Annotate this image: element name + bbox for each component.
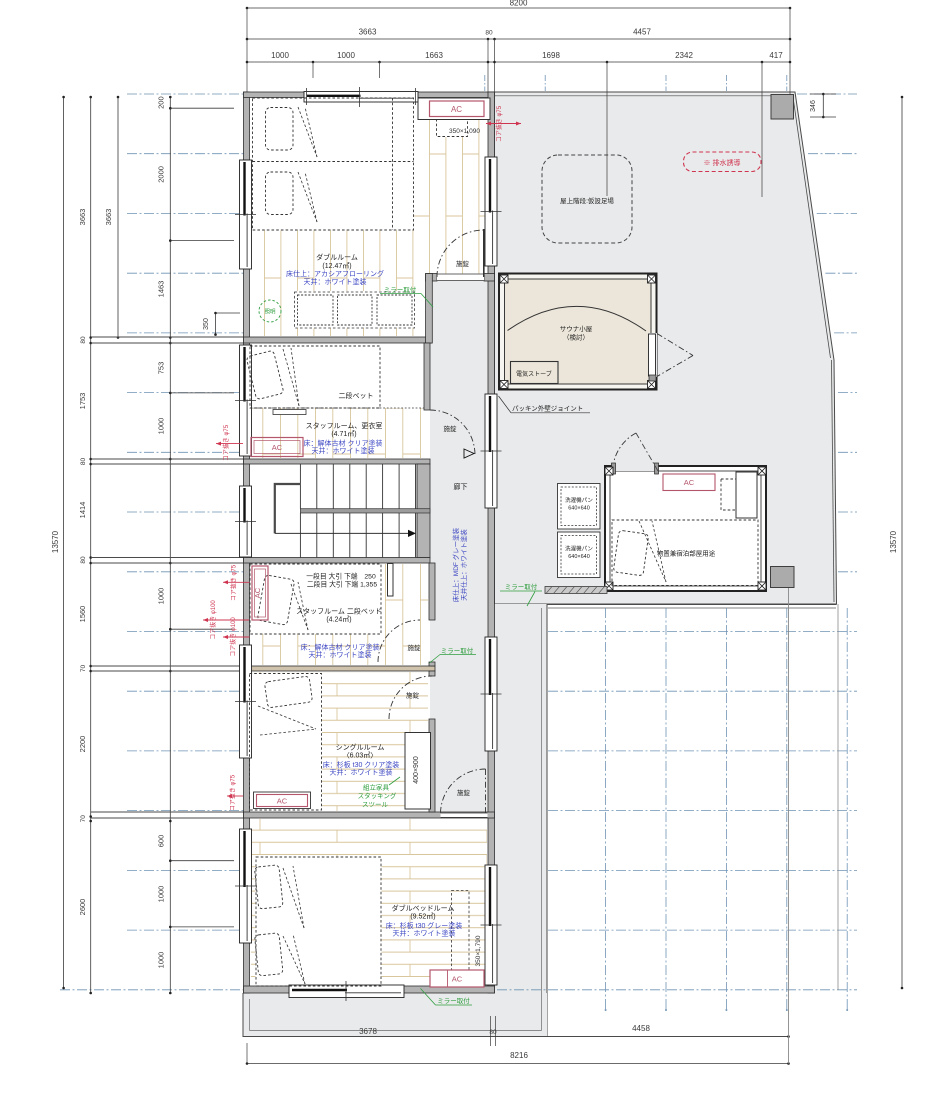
svg-text:洗濯機パン: 洗濯機パン <box>565 496 593 504</box>
svg-text:AC: AC <box>253 587 262 598</box>
svg-text:753: 753 <box>157 362 166 375</box>
svg-text:600: 600 <box>157 835 166 848</box>
svg-text:天井：ホワイト塗装: 天井：ホワイト塗装 <box>304 277 367 286</box>
svg-text:346: 346 <box>810 100 817 112</box>
svg-text:4457: 4457 <box>633 28 651 37</box>
svg-text:400×900: 400×900 <box>413 756 420 784</box>
svg-text:350×1,790: 350×1,790 <box>475 935 482 966</box>
svg-text:1698: 1698 <box>542 51 560 60</box>
svg-text:80: 80 <box>489 1029 497 1036</box>
svg-text:350×1,090: 350×1,090 <box>449 128 480 135</box>
svg-text:3678: 3678 <box>359 1027 377 1036</box>
svg-text:AC: AC <box>277 797 288 806</box>
svg-text:二段ベット: 二段ベット <box>339 391 374 400</box>
svg-text:一段目 大引 下端 250: 一段目 大引 下端 250 <box>306 572 376 581</box>
svg-text:417: 417 <box>769 51 783 60</box>
svg-text:床：杉板 t30 クリア塗装: 床：杉板 t30 クリア塗装 <box>323 760 400 769</box>
svg-text:80: 80 <box>80 556 87 564</box>
svg-text:コア抜き φ75: コア抜き φ75 <box>229 774 237 811</box>
svg-text:スタッキング: スタッキング <box>358 791 397 800</box>
svg-text:(12.47㎡): (12.47㎡) <box>322 262 351 270</box>
svg-text:床仕上：アカシアフローリング: 床仕上：アカシアフローリング <box>286 269 384 278</box>
svg-text:1000: 1000 <box>157 886 166 903</box>
svg-text:1663: 1663 <box>425 51 443 60</box>
svg-text:コア抜き φ75: コア抜き φ75 <box>222 424 230 461</box>
svg-text:天井：ホワイト塗装: 天井：ホワイト塗装 <box>393 929 456 938</box>
svg-text:1414: 1414 <box>78 502 87 519</box>
svg-text:床：杉板 t30 グレー塗装: 床：杉板 t30 グレー塗装 <box>386 921 463 930</box>
svg-text:70: 70 <box>80 665 87 673</box>
svg-text:二段目 大引 下端 1,355: 二段目 大引 下端 1,355 <box>307 580 377 589</box>
svg-text:640×640: 640×640 <box>568 506 590 512</box>
svg-text:2200: 2200 <box>78 736 87 753</box>
svg-text:床：解体古材 クリア塗装: 床：解体古材 クリア塗装 <box>301 643 380 652</box>
svg-text:ミラー取付: ミラー取付 <box>505 582 538 591</box>
svg-text:1000: 1000 <box>337 51 355 60</box>
svg-text:（検討）: （検討） <box>563 333 589 342</box>
svg-text:ダブルルーム: ダブルルーム <box>316 253 358 262</box>
svg-text:1560: 1560 <box>78 606 87 623</box>
svg-text:サウナ小屋: サウナ小屋 <box>560 324 593 333</box>
svg-text:1000: 1000 <box>271 51 289 60</box>
svg-text:組立家具: 組立家具 <box>363 783 390 792</box>
svg-text:80: 80 <box>485 30 493 37</box>
svg-text:AC: AC <box>451 105 462 114</box>
svg-text:天井：ホワイト塗装: 天井：ホワイト塗装 <box>309 650 372 659</box>
svg-text:廊下: 廊下 <box>454 482 468 491</box>
svg-text:施錠: 施錠 <box>457 788 471 797</box>
svg-text:施錠: 施錠 <box>408 643 422 652</box>
svg-text:8216: 8216 <box>510 1051 528 1060</box>
svg-text:350: 350 <box>203 318 210 330</box>
svg-text:AC: AC <box>272 443 283 452</box>
svg-text:8200: 8200 <box>510 0 528 8</box>
svg-text:スタッフルーム、更衣室: スタッフルーム、更衣室 <box>306 421 383 430</box>
svg-text:13570: 13570 <box>51 530 60 553</box>
svg-text:2342: 2342 <box>675 51 693 60</box>
svg-text:〈6.03㎡〉: 〈6.03㎡〉 <box>343 752 378 760</box>
svg-text:3663: 3663 <box>104 209 113 226</box>
svg-text:施錠: 施錠 <box>444 424 458 433</box>
svg-text:4458: 4458 <box>632 1024 650 1033</box>
svg-text:2600: 2600 <box>78 899 87 916</box>
svg-text:洗濯機パン: 洗濯機パン <box>565 545 593 553</box>
svg-text:天井仕上：ホワイト塗装: 天井仕上：ホワイト塗装 <box>459 529 468 601</box>
svg-text:1000: 1000 <box>157 952 166 969</box>
svg-text:スタッフルーム 二段ベッド: スタッフルーム 二段ベッド <box>296 607 382 616</box>
svg-text:スツール: スツール <box>362 801 389 809</box>
svg-text:70: 70 <box>80 815 87 823</box>
svg-text:AC: AC <box>452 975 463 984</box>
svg-text:(9.52㎡): (9.52㎡) <box>410 913 435 921</box>
svg-text:200: 200 <box>157 96 166 109</box>
svg-text:※ 排水誘導: ※ 排水誘導 <box>704 158 741 167</box>
svg-text:物置兼宿泊部屋用途: 物置兼宿泊部屋用途 <box>657 549 716 558</box>
svg-text:屋上階段:仮設足場: 屋上階段:仮設足場 <box>560 196 614 205</box>
svg-text:2000: 2000 <box>157 166 166 183</box>
svg-text:640×640: 640×640 <box>568 554 590 560</box>
svg-text:シングルルーム: シングルルーム <box>336 743 385 752</box>
svg-text:床：解体古材 クリア塗装: 床：解体古材 クリア塗装 <box>304 439 383 448</box>
svg-text:(4.24㎡): (4.24㎡) <box>326 616 351 624</box>
svg-text:1000: 1000 <box>157 418 166 435</box>
svg-text:施錠: 施錠 <box>456 259 470 268</box>
svg-text:1463: 1463 <box>157 281 166 298</box>
svg-text:ダブルベッドルーム: ダブルベッドルーム <box>392 904 455 913</box>
svg-text:ミラー取付: ミラー取付 <box>441 646 474 655</box>
svg-text:ミラー取付: ミラー取付 <box>437 996 470 1005</box>
svg-text:天井：ホワイト塗装: 天井：ホワイト塗装 <box>312 446 375 455</box>
svg-text:13570: 13570 <box>889 530 898 553</box>
svg-text:3663: 3663 <box>78 209 87 226</box>
svg-text:80: 80 <box>80 336 87 344</box>
svg-text:パッキン外壁ジョイント: パッキン外壁ジョイント <box>512 404 583 413</box>
svg-text:80: 80 <box>80 458 87 466</box>
svg-text:ミラー取付: ミラー取付 <box>384 285 417 294</box>
svg-text:AC: AC <box>684 478 695 487</box>
svg-text:施錠: 施錠 <box>406 691 420 700</box>
svg-text:電気ストーブ: 電気ストーブ <box>516 370 552 378</box>
svg-text:照明: 照明 <box>264 309 276 316</box>
svg-text:3663: 3663 <box>359 28 377 37</box>
svg-text:天井：ホワイト塗装: 天井：ホワイト塗装 <box>330 768 393 777</box>
svg-text:1753: 1753 <box>78 393 87 410</box>
svg-text:1000: 1000 <box>157 588 166 605</box>
svg-text:(4.71㎡): (4.71㎡) <box>331 430 356 438</box>
svg-text:床仕上：MDF グレー塗装: 床仕上：MDF グレー塗装 <box>451 527 460 602</box>
